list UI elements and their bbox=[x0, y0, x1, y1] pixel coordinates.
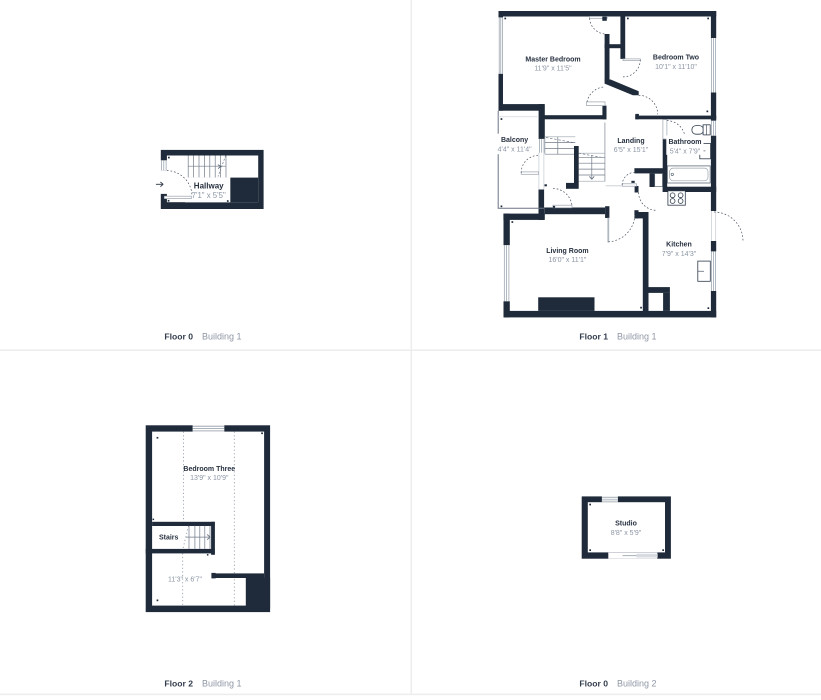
svg-text:Master Bedroom: Master Bedroom bbox=[525, 56, 580, 63]
svg-text:Building 1: Building 1 bbox=[617, 331, 657, 341]
svg-text:Floor 1: Floor 1 bbox=[579, 331, 608, 341]
svg-text:Studio: Studio bbox=[615, 520, 637, 527]
svg-text:Floor 0: Floor 0 bbox=[164, 331, 193, 341]
svg-text:Living Room: Living Room bbox=[546, 248, 588, 255]
svg-text:5'4" x 7'9": 5'4" x 7'9" bbox=[670, 148, 701, 155]
svg-text:11'9" x 11'5": 11'9" x 11'5" bbox=[534, 66, 572, 73]
svg-text:10'1" x 11'10": 10'1" x 11'10" bbox=[655, 64, 697, 71]
svg-text:8'8" x 5'9": 8'8" x 5'9" bbox=[611, 530, 642, 537]
svg-text:Stairs: Stairs bbox=[159, 534, 179, 541]
svg-text:11'3" x 6'7": 11'3" x 6'7" bbox=[168, 576, 202, 583]
svg-text:Balcony: Balcony bbox=[501, 137, 528, 144]
svg-text:6'5" x 15'1": 6'5" x 15'1" bbox=[614, 147, 649, 154]
svg-text:16'0" x 11'1": 16'0" x 11'1" bbox=[548, 257, 586, 264]
svg-text:Building 2: Building 2 bbox=[617, 678, 657, 688]
svg-text:Building 1: Building 1 bbox=[202, 331, 242, 341]
svg-text:Bedroom Two: Bedroom Two bbox=[653, 55, 699, 62]
svg-text:Hallway: Hallway bbox=[194, 181, 224, 190]
svg-text:Bedroom Three: Bedroom Three bbox=[183, 466, 235, 473]
svg-text:7'1" x 5'5": 7'1" x 5'5" bbox=[192, 191, 226, 200]
svg-text:Kitchen: Kitchen bbox=[666, 241, 692, 248]
svg-text:13'9" x 10'9": 13'9" x 10'9" bbox=[190, 475, 229, 482]
svg-text:Floor 0: Floor 0 bbox=[579, 678, 608, 688]
svg-text:Building 1: Building 1 bbox=[202, 678, 242, 688]
svg-text:4'4" x 11'4": 4'4" x 11'4" bbox=[498, 146, 532, 153]
svg-text:Bathroom: Bathroom bbox=[668, 139, 701, 146]
svg-text:Floor 2: Floor 2 bbox=[164, 678, 193, 688]
svg-text:Landing: Landing bbox=[617, 138, 644, 145]
svg-text:7'9" x 14'3": 7'9" x 14'3" bbox=[662, 251, 697, 258]
